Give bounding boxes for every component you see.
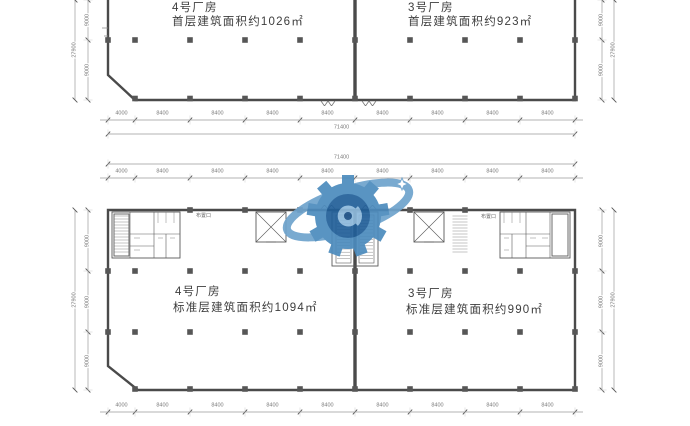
structural-column	[407, 37, 413, 43]
structural-column	[352, 37, 358, 43]
structural-column	[407, 96, 413, 102]
structural-column	[462, 96, 468, 102]
structural-column	[572, 268, 578, 274]
structural-column	[105, 329, 111, 335]
structural-column	[187, 329, 193, 335]
dimension-label: 8400	[265, 170, 279, 176]
dimension-label: 8400	[485, 170, 499, 176]
structural-column	[517, 329, 523, 335]
dimension-label: 9000	[599, 13, 605, 27]
dimension-label: 4000	[114, 404, 128, 410]
unit3-first-floor-title: 3号厂房	[408, 2, 454, 15]
structural-column	[517, 268, 523, 274]
dimension-label: 8400	[210, 170, 224, 176]
dimension-label: 9000	[85, 13, 91, 27]
structural-column	[242, 329, 248, 335]
structural-column	[187, 96, 193, 102]
structural-column	[297, 96, 303, 102]
dimension-label: 9000	[599, 294, 605, 308]
dimension-label: 27900	[72, 41, 78, 58]
structural-column	[297, 329, 303, 335]
structural-column	[132, 37, 138, 43]
dimension-label: 27900	[72, 291, 78, 308]
dimension-label: 8400	[485, 112, 499, 118]
dimension-label: 8400	[430, 404, 444, 410]
structural-column	[407, 329, 413, 335]
structural-column	[105, 268, 111, 274]
structural-column	[242, 386, 248, 392]
dimension-label: 8400	[155, 112, 169, 118]
structural-column	[352, 386, 358, 392]
structural-column	[187, 386, 193, 392]
dimension-label: 8400	[210, 112, 224, 118]
dimension-label: 8400	[375, 170, 389, 176]
floor-plan-sheet: 4号厂房 首层建筑面积约1026㎡ 3号厂房 首层建筑面积约923㎡ 4号厂房 …	[0, 0, 690, 426]
dimension-label: 9000	[85, 233, 91, 247]
dimension-label: 8400	[155, 404, 169, 410]
dimension-label: 8400	[540, 170, 554, 176]
opening-label-left: 布置口	[196, 214, 211, 219]
structural-column	[297, 386, 303, 392]
dimension-label: 8400	[540, 112, 554, 118]
dimension-label: 8400	[320, 170, 334, 176]
unit3-standard-floor-title: 3号厂房	[408, 288, 454, 301]
structural-column	[352, 329, 358, 335]
structural-column	[517, 96, 523, 102]
unit4-standard-floor-title: 4号厂房	[175, 286, 221, 299]
dimension-label: 27900	[611, 291, 617, 308]
unit3-standard-floor-area: 标准层建筑面积约990㎡	[406, 304, 543, 317]
structural-column	[297, 37, 303, 43]
dimension-label: 9000	[599, 354, 605, 368]
structural-column	[242, 37, 248, 43]
dimension-label: 27900	[611, 41, 617, 58]
structural-column	[132, 96, 138, 102]
structural-column	[132, 268, 138, 274]
structural-column	[572, 329, 578, 335]
structural-column	[105, 37, 111, 43]
gear-icon	[307, 175, 390, 257]
structural-column	[572, 386, 578, 392]
dimension-label: 9000	[85, 294, 91, 308]
dimension-label: 8400	[430, 170, 444, 176]
unit4-first-floor-title: 4号厂房	[172, 2, 218, 15]
dimension-label: 8400	[375, 404, 389, 410]
dimension-label: 8400	[485, 404, 499, 410]
structural-column	[462, 386, 468, 392]
structural-column	[462, 37, 468, 43]
structural-column	[517, 386, 523, 392]
dimension-label: 9000	[85, 354, 91, 368]
unit3-first-floor-area: 首层建筑面积约923㎡	[408, 16, 532, 29]
dimension-label: 9000	[599, 63, 605, 77]
dimension-label: 8400	[155, 170, 169, 176]
structural-column	[462, 329, 468, 335]
dimension-label: 8400	[320, 112, 334, 118]
dimension-label: 4000	[114, 112, 128, 118]
structural-column	[462, 207, 468, 213]
dimension-label: 71400	[333, 126, 350, 132]
structural-column	[572, 37, 578, 43]
structural-column	[407, 386, 413, 392]
structural-column	[462, 268, 468, 274]
dimension-label: 8400	[320, 404, 334, 410]
structural-column	[352, 96, 358, 102]
structural-column	[517, 37, 523, 43]
dimension-label: 8400	[375, 112, 389, 118]
unit4-standard-floor-area: 标准层建筑面积约1094㎡	[173, 302, 318, 315]
structural-column	[187, 37, 193, 43]
opening-label-right: 布置口	[481, 215, 496, 220]
dimension-label: 9000	[85, 63, 91, 77]
dimension-label: 8400	[265, 404, 279, 410]
structural-column	[187, 207, 193, 213]
dimension-label: 8400	[265, 112, 279, 118]
structural-column	[242, 207, 248, 213]
watermark-logo	[278, 162, 420, 270]
structural-column	[187, 268, 193, 274]
unit4-first-floor-area: 首层建筑面积约1026㎡	[172, 16, 304, 29]
dimension-label: 71400	[333, 156, 350, 162]
dimension-label: 4000	[114, 170, 128, 176]
structural-column	[242, 96, 248, 102]
dimension-label: 8400	[430, 112, 444, 118]
structural-column	[132, 386, 138, 392]
structural-column	[132, 329, 138, 335]
dimension-label: 8400	[540, 404, 554, 410]
structural-column	[242, 268, 248, 274]
dimension-label: 8400	[210, 404, 224, 410]
dimension-label: 9000	[599, 233, 605, 247]
structural-column	[572, 96, 578, 102]
